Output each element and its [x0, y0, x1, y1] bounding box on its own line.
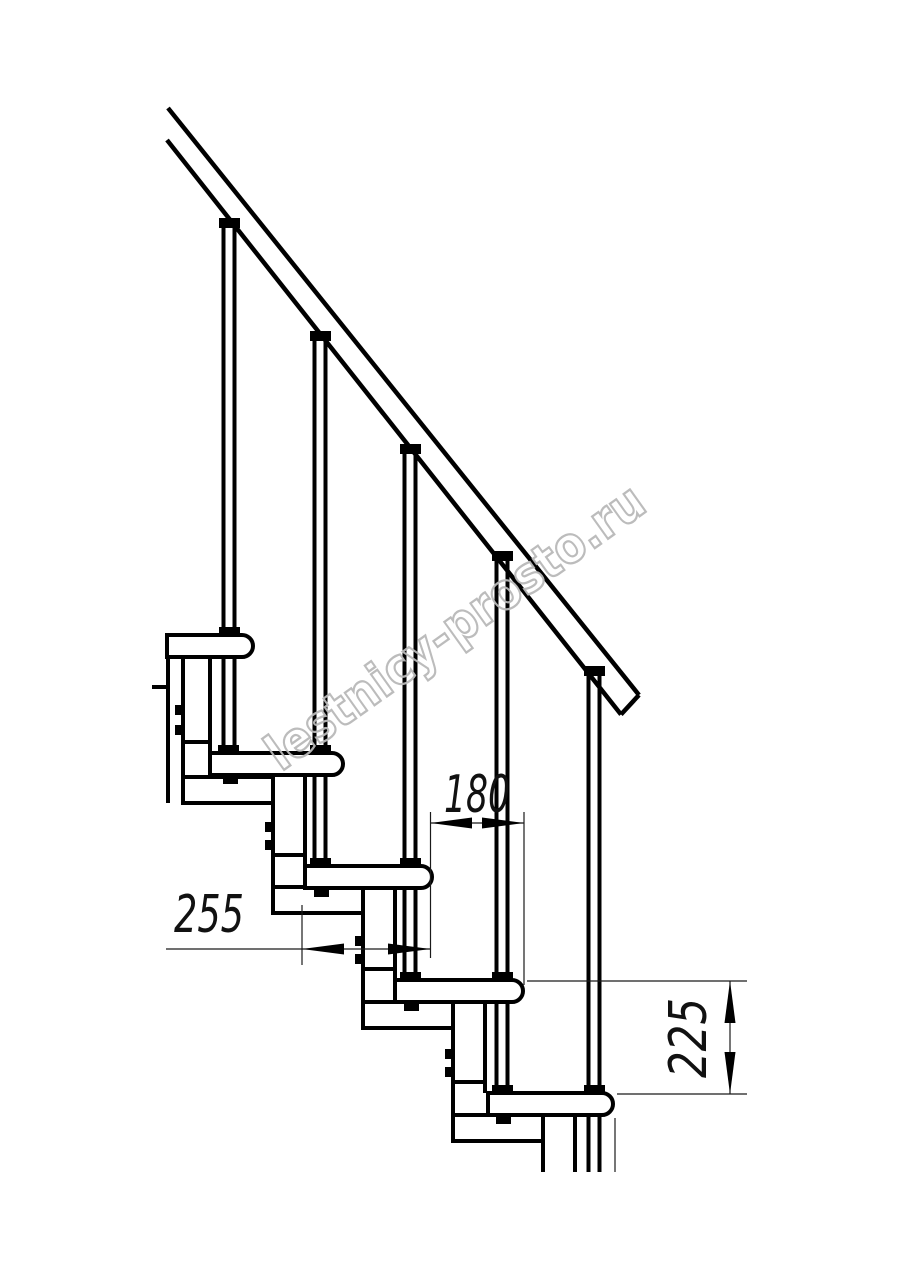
- rod-nut: [314, 888, 329, 897]
- dim-label-step-run: 180: [444, 765, 510, 825]
- bolt-icon: [355, 936, 363, 946]
- bolt-icon: [265, 840, 273, 850]
- arrow-left-icon: [302, 944, 344, 955]
- rod-nut: [223, 775, 238, 784]
- dim-label-tread-depth: 255: [174, 885, 244, 945]
- bolt-icon: [445, 1067, 453, 1077]
- tread-1: [167, 635, 253, 657]
- dimension-180: 180: [431, 765, 525, 985]
- spine-module-4: [445, 1002, 543, 1141]
- tread-collar: [492, 972, 513, 980]
- rod-nut: [404, 1002, 419, 1011]
- technical-drawing-page: 180 255 225 lestnicy-prosto.ru: [0, 0, 914, 1280]
- bolt-icon: [175, 725, 183, 735]
- tread-collar: [400, 972, 421, 980]
- tread-collar: [400, 858, 421, 866]
- dimension-225: 225: [527, 981, 747, 1172]
- tread-collar: [218, 745, 239, 753]
- arrow-down-icon: [725, 1052, 736, 1094]
- baluster-rod-3: [400, 444, 421, 1011]
- rod-nut: [496, 1115, 511, 1124]
- bolt-icon: [265, 822, 273, 832]
- spine-module-0: [152, 635, 168, 803]
- bolt-icon: [175, 705, 183, 715]
- arrow-up-icon: [725, 981, 736, 1023]
- baluster-rod-2: [310, 331, 331, 897]
- bolt-icon: [355, 954, 363, 964]
- tread-collar: [492, 1085, 513, 1093]
- staircase-drawing: 180 255 225 lestnicy-prosto.ru: [0, 0, 914, 1280]
- tread-collar: [219, 627, 240, 635]
- arrow-right-icon: [388, 944, 431, 955]
- dim-label-step-rise: 225: [659, 998, 719, 1078]
- bolt-icon: [445, 1049, 453, 1059]
- tread-collar: [584, 1085, 605, 1093]
- tread-5: [488, 1093, 613, 1115]
- baluster-rod-1: [218, 218, 240, 784]
- tread-collar: [310, 858, 331, 866]
- tread-4: [395, 980, 523, 1002]
- tread-3: [305, 866, 432, 888]
- baluster-rod-4: [492, 551, 513, 1124]
- spine-module-5: [543, 1115, 575, 1172]
